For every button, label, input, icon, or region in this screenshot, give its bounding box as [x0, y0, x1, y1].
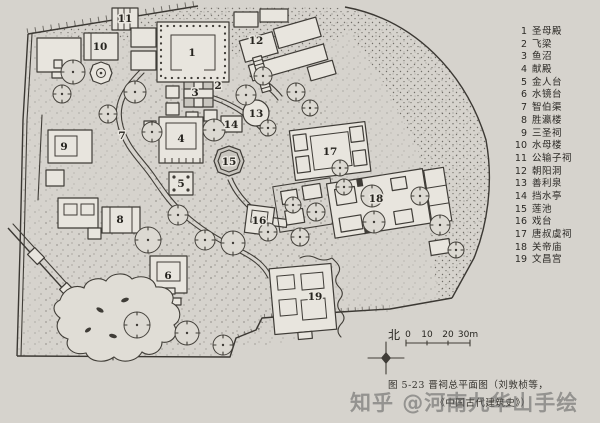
legend-item-label: 金人台	[532, 77, 562, 90]
compass-north-icon: 北	[368, 328, 404, 374]
legend-item-number: 8	[513, 115, 527, 128]
legend-item-label: 飞梁	[532, 39, 552, 52]
tree-icon	[363, 211, 385, 233]
map-label-1: 1	[188, 47, 195, 59]
legend-item: 11公输子祠	[513, 153, 599, 166]
legend: 1圣母殿2飞梁3鱼沼4献殿5金人台6水镜台7智伯渠8胜瀛楼9三圣祠10水母楼11…	[513, 26, 599, 267]
legend-item: 1圣母殿	[513, 26, 599, 39]
tree-icon	[124, 81, 146, 103]
tree-icon	[213, 335, 233, 355]
tree-icon	[142, 122, 162, 142]
tree-icon	[430, 215, 450, 235]
legend-item: 10水母楼	[513, 140, 599, 153]
map-label-17: 17	[323, 146, 338, 158]
legend-item: 4献殿	[513, 64, 599, 77]
legend-item-number: 7	[513, 102, 527, 115]
legend-item: 2飞梁	[513, 39, 599, 52]
legend-item-number: 3	[513, 51, 527, 64]
legend-list: 1圣母殿2飞梁3鱼沼4献殿5金人台6水镜台7智伯渠8胜瀛楼9三圣祠10水母楼11…	[513, 26, 599, 267]
legend-item-number: 16	[513, 216, 527, 229]
tree-icon	[61, 60, 85, 84]
legend-item-number: 4	[513, 64, 527, 77]
map-label-19: 19	[308, 291, 323, 303]
building-19	[269, 263, 337, 341]
tree-icon	[254, 67, 272, 85]
legend-item-number: 1	[513, 26, 527, 39]
legend-item-label: 文昌宫	[532, 254, 562, 267]
map-label-5: 5	[177, 178, 184, 190]
map-label-2: 2	[214, 80, 221, 92]
tree-icon	[53, 85, 71, 103]
map-label-15: 15	[222, 156, 237, 168]
legend-item-label: 水镜台	[532, 89, 562, 102]
legend-item-number: 12	[513, 166, 527, 179]
legend-item-label: 莲池	[532, 204, 552, 217]
legend-item-label: 三圣祠	[532, 128, 562, 141]
legend-item: 16戏台	[513, 216, 599, 229]
legend-item-label: 献殿	[532, 64, 552, 77]
tree-icon	[448, 242, 464, 258]
legend-item-number: 5	[513, 77, 527, 90]
tree-icon	[336, 179, 352, 195]
tree-icon	[221, 231, 245, 255]
map-label-10: 10	[93, 41, 108, 53]
tree-icon	[175, 321, 199, 345]
map-label-9: 9	[60, 141, 67, 153]
tree-icon	[168, 205, 188, 225]
legend-item-number: 15	[513, 204, 527, 217]
watermark: 知乎 @河南九华山手绘	[350, 387, 578, 417]
legend-item-label: 戏台	[532, 216, 552, 229]
legend-item-number: 10	[513, 140, 527, 153]
tree-icon	[135, 227, 161, 253]
map-label-6: 6	[164, 270, 171, 282]
tree-icon	[285, 197, 301, 213]
scanned-site-plan-page: 北 0102030m 12345678910111213141516171819…	[0, 0, 600, 423]
tree-icon	[260, 120, 276, 136]
tree-icon	[411, 187, 429, 205]
tree-icon	[332, 160, 348, 176]
map-label-13: 13	[249, 108, 264, 120]
map-label-16: 16	[252, 215, 267, 227]
legend-item: 13善利泉	[513, 178, 599, 191]
map-label-8: 8	[116, 214, 123, 226]
tree-icon	[195, 230, 215, 250]
legend-item-label: 圣母殿	[532, 26, 562, 39]
legend-item-number: 19	[513, 254, 527, 267]
site-plan-map: 北 0102030m 12345678910111213141516171819	[0, 0, 600, 423]
scale-tick-label: 20	[442, 330, 454, 340]
legend-item-label: 水母楼	[532, 140, 562, 153]
legend-item: 6水镜台	[513, 89, 599, 102]
legend-item-label: 公输子祠	[532, 153, 572, 166]
legend-item: 15莲池	[513, 204, 599, 217]
tree-icon	[99, 105, 117, 123]
legend-item: 3鱼沼	[513, 51, 599, 64]
legend-item-number: 14	[513, 191, 527, 204]
legend-item-number: 11	[513, 153, 527, 166]
tree-icon	[302, 100, 318, 116]
map-label-12: 12	[249, 35, 264, 47]
legend-item: 9三圣祠	[513, 128, 599, 141]
north-label: 北	[388, 328, 400, 342]
legend-item-label: 关帝庙	[532, 242, 562, 255]
tree-icon	[203, 119, 225, 141]
legend-item: 12朝阳洞	[513, 166, 599, 179]
map-label-3: 3	[191, 87, 198, 99]
legend-item: 19文昌宫	[513, 254, 599, 267]
legend-item-label: 鱼沼	[532, 51, 552, 64]
scale-tick-label: 30m	[458, 330, 478, 340]
legend-item-label: 唐叔虞祠	[532, 229, 572, 242]
legend-item-label: 胜瀛楼	[532, 115, 562, 128]
legend-item-number: 9	[513, 128, 527, 141]
legend-item: 7智伯渠	[513, 102, 599, 115]
legend-item-number: 6	[513, 89, 527, 102]
legend-item-label: 善利泉	[532, 178, 562, 191]
legend-item-number: 18	[513, 242, 527, 255]
legend-item-number: 2	[513, 39, 527, 52]
legend-item: 18关帝庙	[513, 242, 599, 255]
tree-icon	[291, 228, 309, 246]
map-label-11: 11	[118, 13, 133, 25]
tree-icon	[236, 85, 256, 105]
scale-tick-label: 0	[405, 330, 411, 340]
legend-item-label: 朝阳洞	[532, 166, 562, 179]
legend-item-number: 13	[513, 178, 527, 191]
legend-item: 5金人台	[513, 77, 599, 90]
map-label-14: 14	[224, 119, 239, 131]
legend-item: 8胜瀛楼	[513, 115, 599, 128]
scale-bar: 0102030m	[405, 330, 478, 346]
map-label-18: 18	[369, 193, 384, 205]
legend-item-number: 17	[513, 229, 527, 242]
scale-tick-label: 10	[421, 330, 433, 340]
map-label-4: 4	[177, 133, 184, 145]
legend-item: 17唐叔虞祠	[513, 229, 599, 242]
tree-icon	[124, 312, 150, 338]
map-label-7: 7	[118, 130, 125, 142]
tree-canopy	[54, 274, 180, 361]
legend-item-label: 挡水亭	[532, 191, 562, 204]
tree-icon	[287, 83, 305, 101]
tree-icon	[307, 203, 325, 221]
legend-item-label: 智伯渠	[532, 102, 562, 115]
legend-item: 14挡水亭	[513, 191, 599, 204]
